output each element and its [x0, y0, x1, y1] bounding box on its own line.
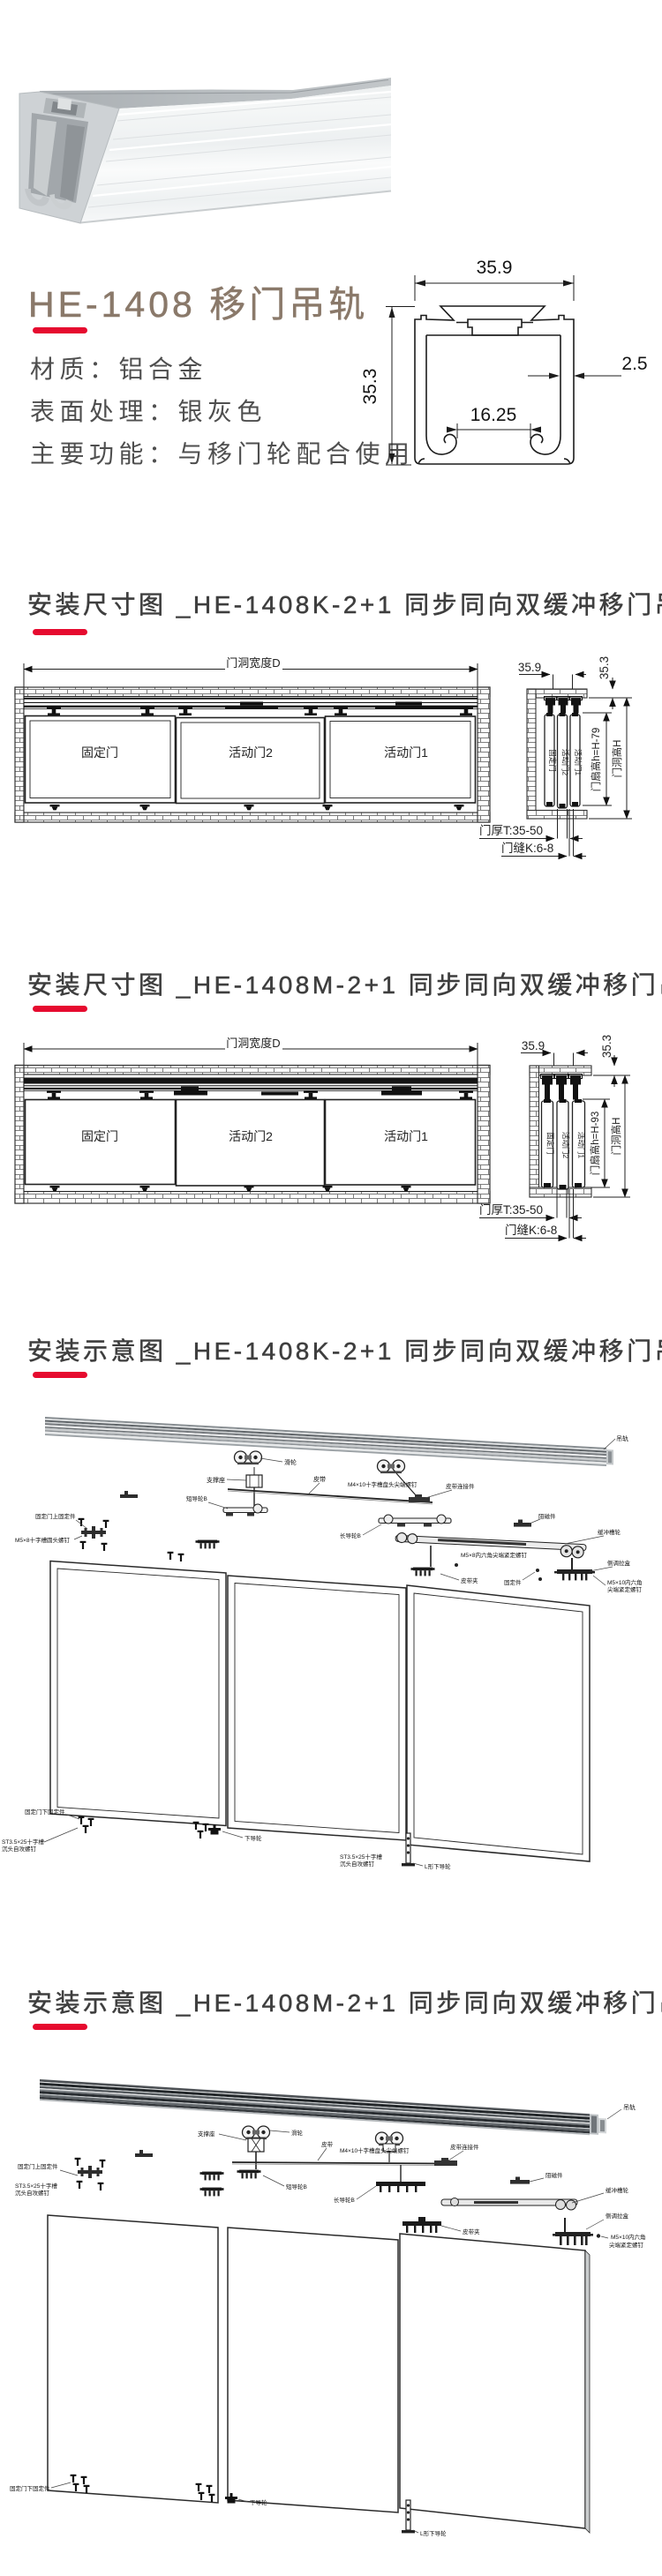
svg-text:长导轮B: 长导轮B	[334, 2196, 355, 2204]
svg-text:ST3.5×25十字槽: ST3.5×25十字槽	[2, 1838, 44, 1846]
svg-text:短导轮B: 短导轮B	[286, 2183, 307, 2190]
svg-text:ST3.5×25十字槽: ST3.5×25十字槽	[340, 1853, 382, 1861]
svg-text:L形下导轮: L形下导轮	[425, 1862, 451, 1870]
svg-text:活动门2: 活动门2	[229, 1129, 273, 1143]
svg-text:侧调拉盒: 侧调拉盒	[606, 2212, 629, 2220]
svg-text:侧调拉盒: 侧调拉盒	[607, 1559, 631, 1567]
svg-text:下导轮: 下导轮	[250, 2498, 267, 2506]
svg-text:活动门2: 活动门2	[561, 749, 570, 776]
svg-text:固定门: 固定门	[548, 749, 557, 772]
svg-text:35.3: 35.3	[600, 1035, 613, 1058]
svg-text:M5×8内六角尖端紧定螺钉: M5×8内六角尖端紧定螺钉	[461, 1551, 527, 1559]
svg-text:活动门1: 活动门1	[384, 1129, 428, 1143]
svg-text:固定门: 固定门	[546, 1132, 555, 1155]
svg-text:皮带连接件: 皮带连接件	[450, 2143, 479, 2151]
svg-text:35.9: 35.9	[518, 661, 541, 674]
svg-text:门厚T:35-50: 门厚T:35-50	[479, 824, 543, 837]
svg-text:滑轮: 滑轮	[284, 1458, 297, 1466]
svg-text:M4×10十字槽盘头尖端螺钉: M4×10十字槽盘头尖端螺钉	[348, 1480, 418, 1488]
svg-text:长导轮B: 长导轮B	[340, 1531, 361, 1539]
svg-text:16.25: 16.25	[470, 405, 517, 425]
svg-text:固定门上固定件: 固定门上固定件	[18, 2162, 58, 2170]
svg-text:沉头自攻螺钉: 沉头自攻螺钉	[15, 2189, 50, 2197]
svg-text:短导轮B: 短导轮B	[186, 1494, 207, 1502]
svg-text:皮带: 皮带	[321, 2140, 334, 2148]
svg-text:门洞高H: 门洞高H	[610, 1118, 622, 1156]
svg-text:35.9: 35.9	[522, 1039, 545, 1052]
svg-text:尖端紧定螺钉: 尖端紧定螺钉	[607, 1585, 643, 1593]
svg-text:固定门下固定件: 固定门下固定件	[10, 2484, 50, 2492]
svg-text:门扇高h=H-79: 门扇高h=H-79	[590, 728, 602, 792]
svg-text:固定门下固定件: 固定门下固定件	[25, 1808, 65, 1816]
svg-text:ST3.5×25十字槽: ST3.5×25十字槽	[15, 2182, 57, 2190]
svg-text:缓冲槽轮: 缓冲槽轮	[606, 2186, 629, 2194]
svg-text:沉头自攻螺钉: 沉头自攻螺钉	[340, 1860, 375, 1868]
svg-text:阻磁件: 阻磁件	[538, 1512, 556, 1520]
svg-text:沉头自攻螺钉: 沉头自攻螺钉	[2, 1845, 37, 1853]
svg-text:L形下导轮: L形下导轮	[420, 2529, 447, 2537]
svg-text:尖端紧定螺钉: 尖端紧定螺钉	[609, 2241, 644, 2249]
svg-text:2.5: 2.5	[621, 354, 647, 374]
svg-text:阻磁件: 阻磁件	[545, 2171, 563, 2179]
svg-text:缓冲槽轮: 缓冲槽轮	[598, 1528, 621, 1536]
svg-text:皮带夹: 皮带夹	[461, 1576, 478, 1584]
svg-text:M4×10十字槽盘头尖端螺钉: M4×10十字槽盘头尖端螺钉	[340, 2146, 410, 2154]
svg-text:M5×8十字槽圆头螺钉: M5×8十字槽圆头螺钉	[15, 1536, 70, 1544]
svg-text:活动门2: 活动门2	[561, 1132, 570, 1159]
svg-text:M5×10内六角: M5×10内六角	[607, 1578, 643, 1586]
svg-text:滑轮: 滑轮	[291, 2129, 304, 2137]
svg-text:门扇高h=H-93: 门扇高h=H-93	[589, 1112, 601, 1176]
svg-text:支撑座: 支撑座	[198, 2130, 215, 2138]
svg-text:35.3: 35.3	[360, 369, 380, 405]
svg-text:M5×10内六角: M5×10内六角	[611, 2233, 646, 2241]
svg-text:吊轨: 吊轨	[616, 1434, 628, 1442]
svg-text:活动门1: 活动门1	[574, 749, 583, 776]
svg-text:35.9: 35.9	[477, 258, 513, 278]
svg-text:活动门1: 活动门1	[384, 745, 428, 760]
svg-text:皮带夹: 皮带夹	[463, 2228, 480, 2235]
svg-text:35.3: 35.3	[598, 656, 611, 679]
svg-text:皮带连接件: 皮带连接件	[446, 1482, 475, 1490]
svg-text:门洞高H: 门洞高H	[611, 740, 623, 778]
svg-text:皮带: 皮带	[313, 1475, 326, 1483]
svg-text:门缝K:6-8: 门缝K:6-8	[501, 842, 553, 855]
svg-text:门缝K:6-8: 门缝K:6-8	[505, 1224, 557, 1237]
svg-text:活动门2: 活动门2	[229, 745, 273, 760]
svg-text:吊轨: 吊轨	[623, 2103, 636, 2111]
svg-text:固定门: 固定门	[81, 745, 118, 760]
svg-text:支撑座: 支撑座	[207, 1476, 225, 1484]
svg-text:固定门上固定件: 固定门上固定件	[35, 1512, 76, 1520]
svg-text:下导轮: 下导轮	[244, 1834, 262, 1842]
svg-text:固定件: 固定件	[504, 1578, 522, 1586]
svg-text:固定门: 固定门	[81, 1129, 118, 1143]
svg-text:门洞宽度D: 门洞宽度D	[226, 1037, 280, 1050]
svg-text:门洞宽度D: 门洞宽度D	[226, 656, 280, 670]
svg-text:门厚T:35-50: 门厚T:35-50	[479, 1203, 543, 1217]
svg-text:活动门1: 活动门1	[577, 1132, 586, 1159]
